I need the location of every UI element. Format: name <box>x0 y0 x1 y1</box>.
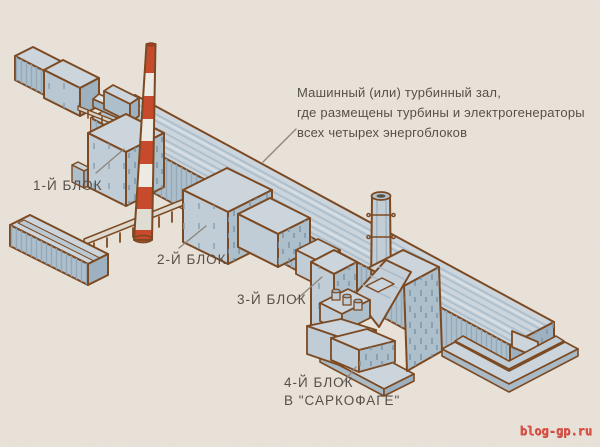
label-block-3: 3-Й БЛОК <box>237 291 307 309</box>
note-line-3: всех четырех энергоблоков <box>297 123 585 143</box>
chernobyl-plant-diagram: Машинный (или) турбинный зал, где размещ… <box>0 0 600 447</box>
label-block-4-line-1: 4-Й БЛОК <box>284 374 400 392</box>
note-line-2: где размещены турбины и электрогенератор… <box>297 103 585 123</box>
label-block-4-line-2: В "САРКОФАГЕ" <box>284 392 400 410</box>
label-block-1: 1-Й БЛОК <box>33 177 103 195</box>
label-block-2: 2-Й БЛОК <box>157 251 227 269</box>
note-line-1: Машинный (или) турбинный зал, <box>297 83 585 103</box>
watermark: blog-gp.ru <box>520 424 592 438</box>
label-block-4: 4-Й БЛОК В "САРКОФАГЕ" <box>284 374 400 410</box>
machine-hall-note: Машинный (или) турбинный зал, где размещ… <box>297 83 585 143</box>
